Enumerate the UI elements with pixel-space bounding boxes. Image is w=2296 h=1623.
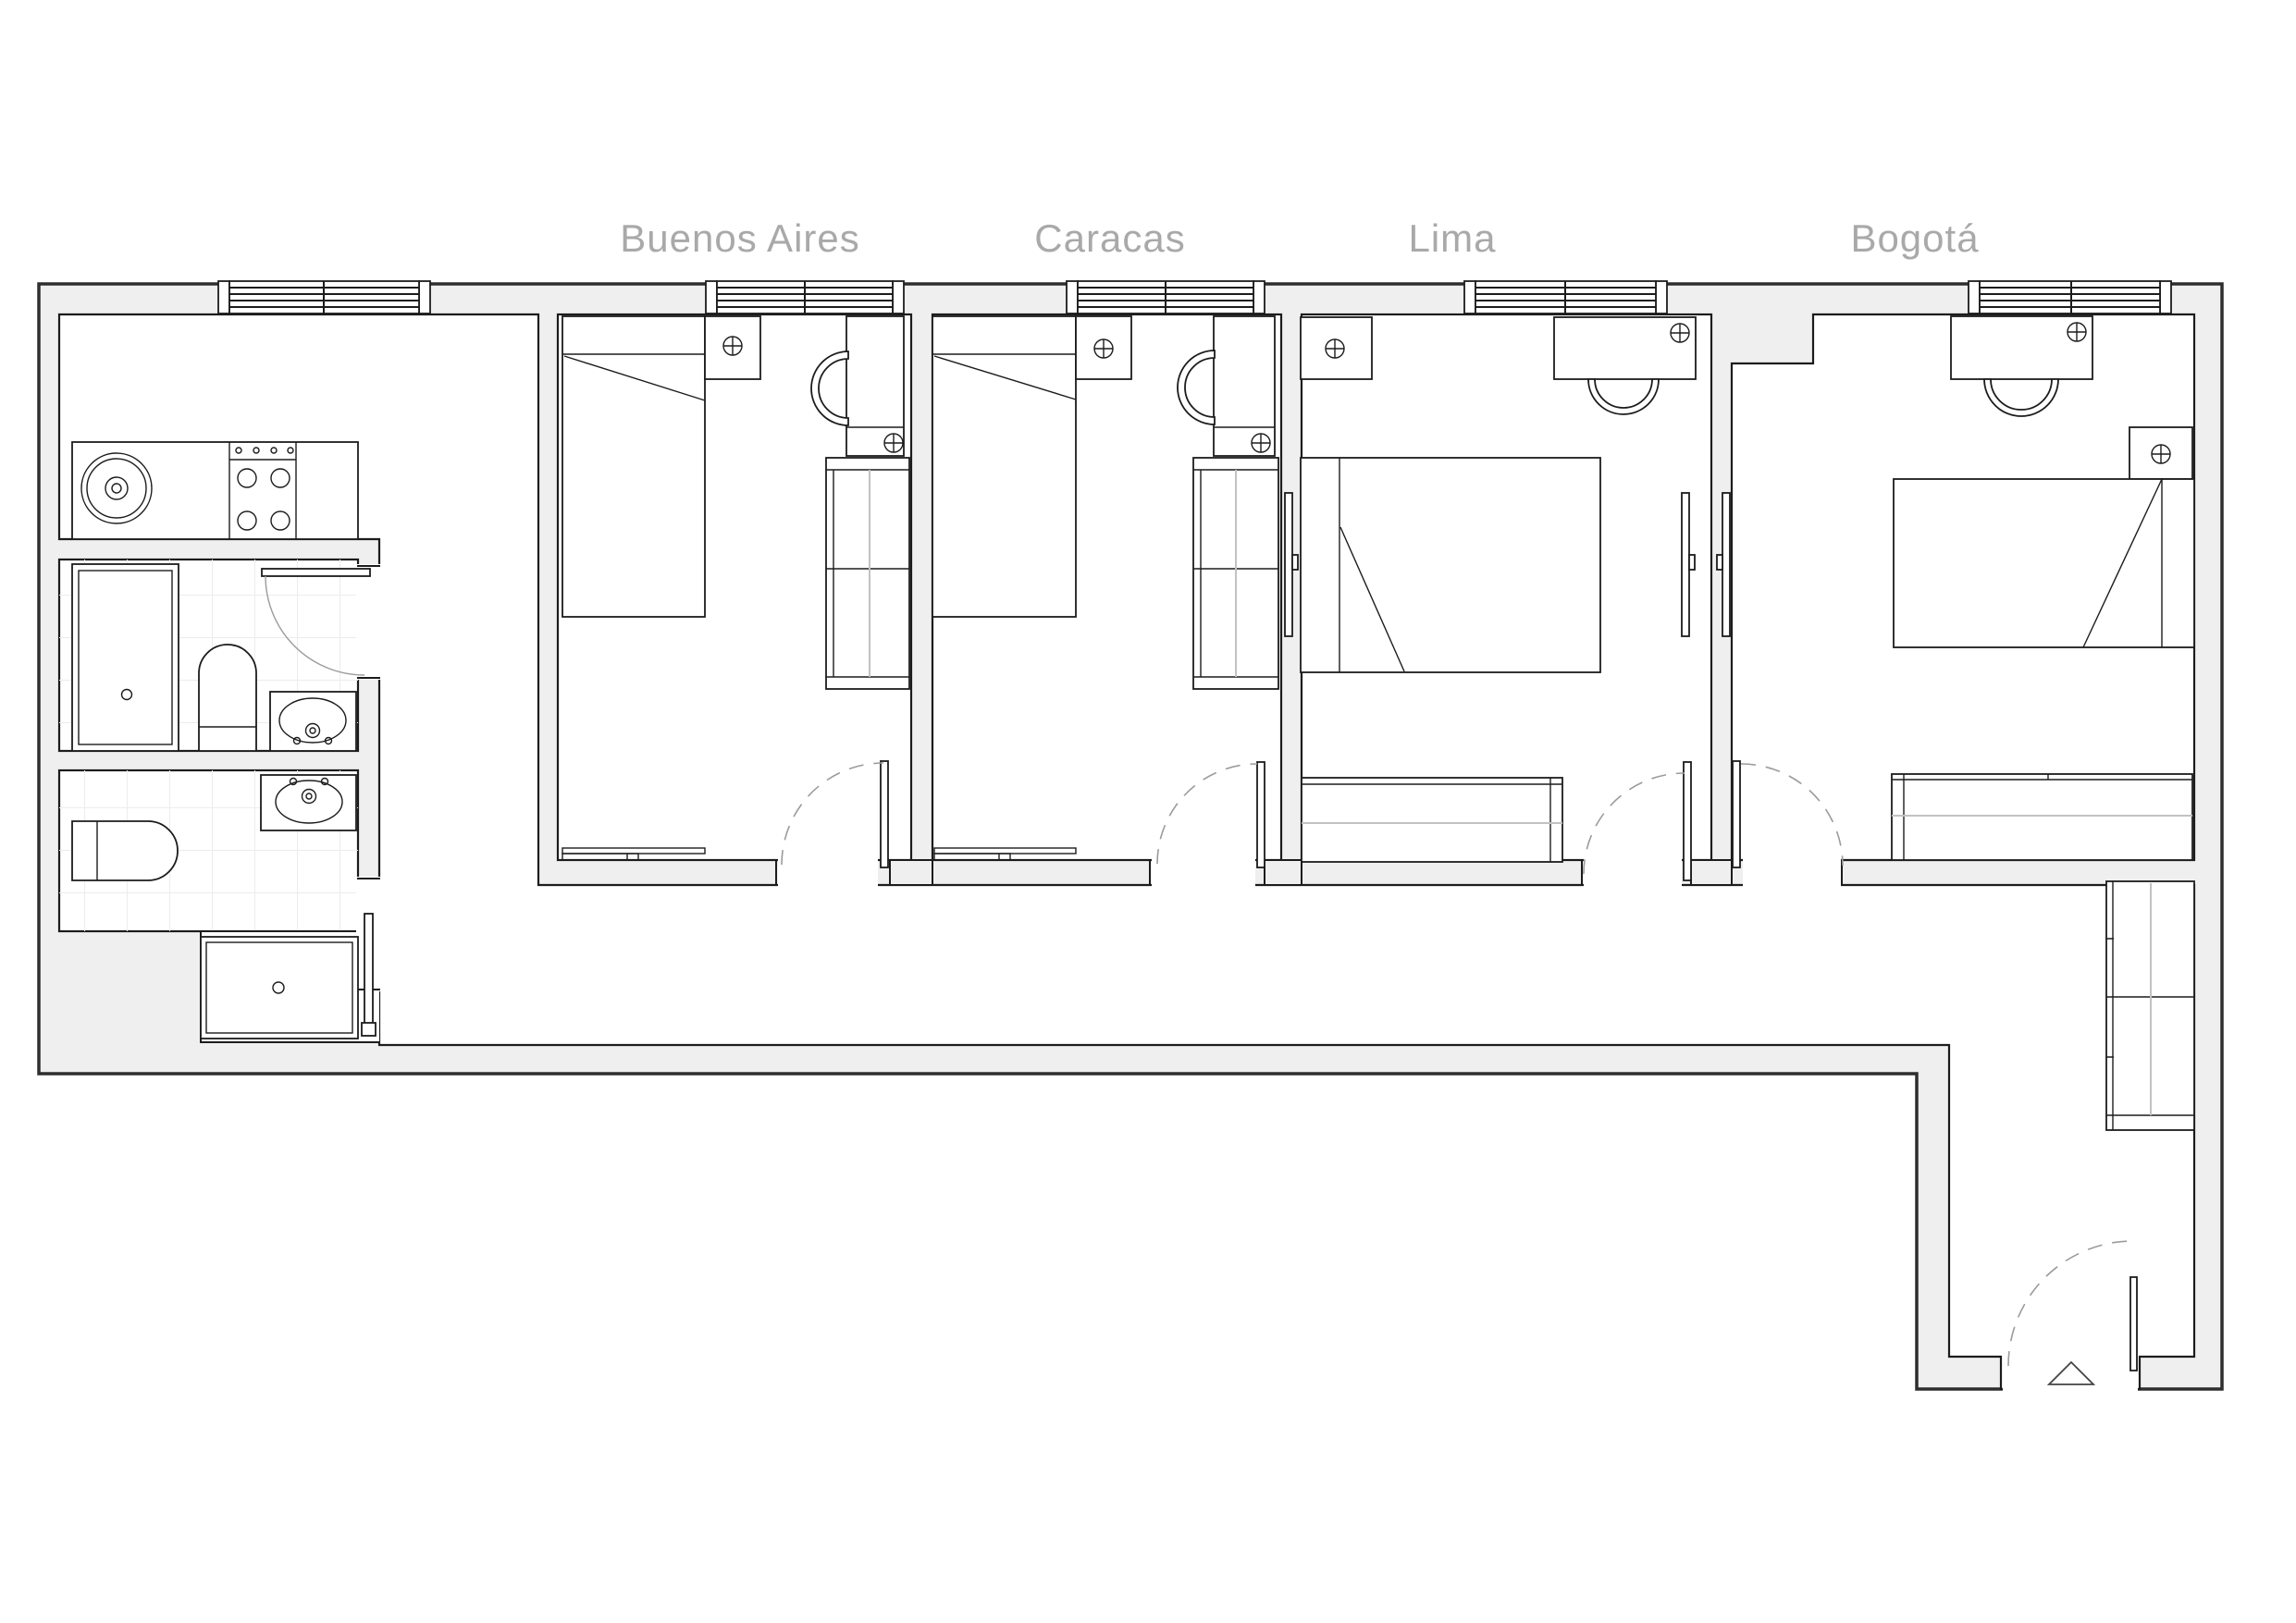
hall-cabinet (2106, 881, 2194, 1130)
washbasin-icon (270, 692, 356, 751)
single-bed (932, 316, 1076, 617)
door-leaf (881, 761, 888, 867)
light-point-symbol (884, 434, 903, 452)
label-bogota: Bogotá (1850, 216, 1979, 260)
window-buenos-aires (706, 281, 904, 314)
door-leaf (1733, 761, 1740, 867)
window-kitchen (218, 281, 430, 314)
bathroom-lower-sliding-door (364, 914, 373, 1034)
window-bogota (1969, 281, 2171, 314)
window-caracas (1067, 281, 1265, 314)
wardrobe (1193, 458, 1278, 689)
entrance-door-leaf (2130, 1277, 2137, 1371)
label-buenos-aires: Buenos Aires (620, 216, 860, 260)
kitchen-counter (72, 442, 358, 539)
door-leaf (1257, 762, 1265, 867)
light-point-symbol (1671, 324, 1689, 342)
floor-spaces (59, 314, 2194, 1389)
double-bed (1894, 479, 2194, 647)
label-caracas: Caracas (1034, 216, 1185, 260)
light-point-symbol (2152, 445, 2170, 463)
kitchen (72, 442, 358, 539)
desk (1951, 316, 2092, 379)
sliding-door-foot (362, 1023, 376, 1036)
light-point-symbol (723, 337, 742, 355)
laundry-niche (201, 937, 358, 1039)
sideboard (1302, 778, 1562, 862)
light-point-symbol (1252, 434, 1270, 452)
pier-foot (1265, 860, 1302, 885)
toilet-icon (72, 821, 178, 880)
light-point-symbol (2068, 323, 2086, 341)
light-point-symbol (1094, 339, 1113, 358)
label-lima: Lima (1408, 216, 1496, 260)
room-labels: Buenos Aires Caracas Lima Bogotá (620, 216, 1979, 260)
light-point-symbol (1326, 339, 1344, 358)
window-lima (1464, 281, 1667, 314)
washing-machine-icon (201, 937, 358, 1039)
single-bed (562, 316, 705, 617)
desk (1554, 317, 1696, 379)
toilet-icon (199, 645, 256, 751)
wardrobe (826, 458, 909, 689)
double-bed (1301, 458, 1600, 672)
desk (846, 316, 904, 456)
pier-foot (890, 860, 932, 885)
door-leaf (1684, 762, 1691, 880)
bathroom-upper-door-leaf (262, 569, 370, 576)
pier-foot (1691, 860, 1732, 885)
sideboard (1892, 774, 2192, 860)
washbasin-icon (261, 775, 356, 830)
shower-icon (72, 564, 179, 751)
